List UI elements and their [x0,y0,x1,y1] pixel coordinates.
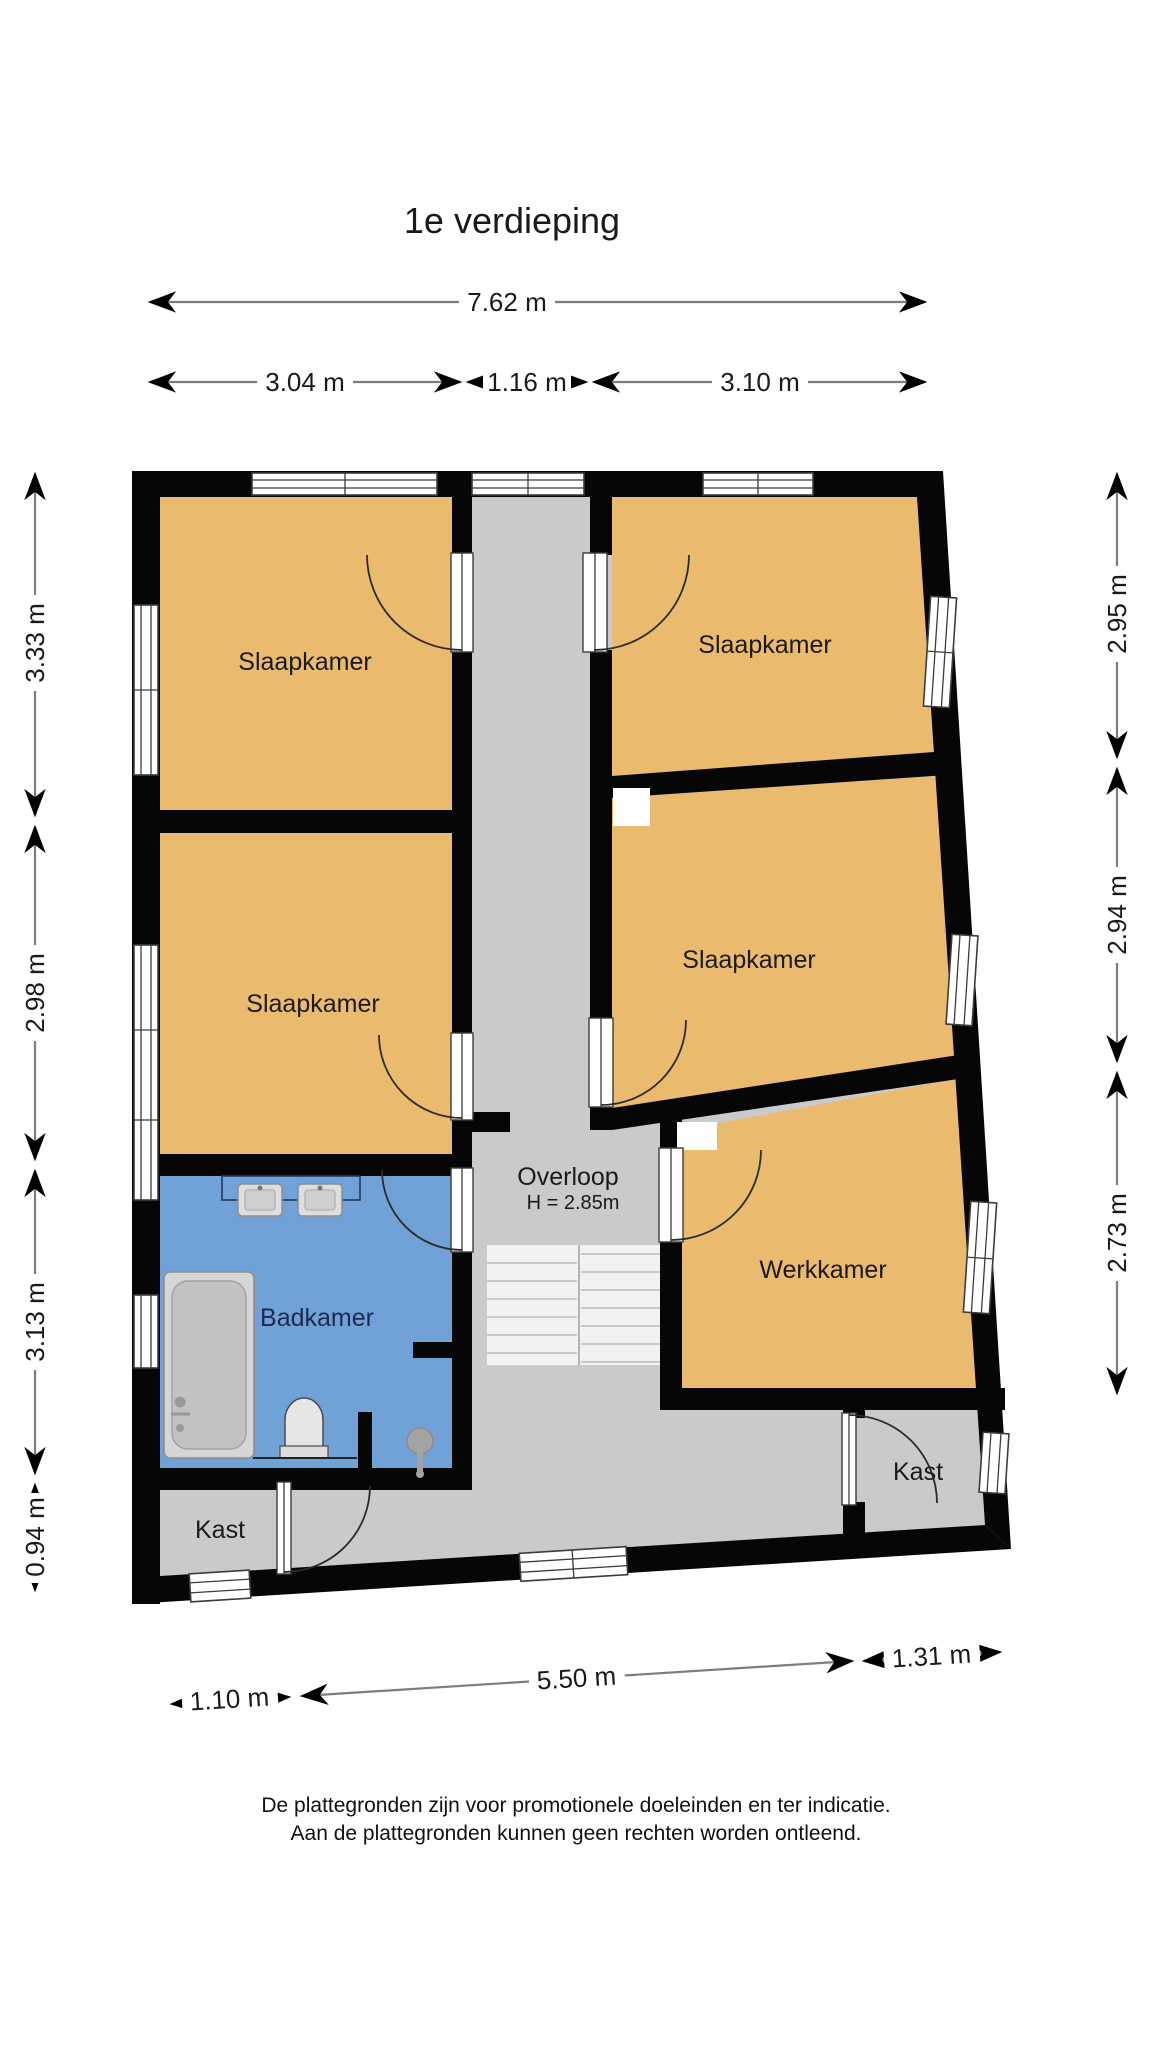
floorplan-canvas: 1e verdieping [0,0,1152,2048]
dimension-top-segment-1: 3.04 m [150,367,460,397]
dimension-left-2: 2.98 m [19,827,51,1159]
niche-bedroom-mid-right [613,788,650,826]
dimension-label-bottom-2: 5.50 m [536,1661,617,1696]
dimension-label-right-1: 2.95 m [1102,574,1132,654]
dimension-top-segment-2: 1.16 m [468,367,586,397]
niche-workroom [677,1122,717,1150]
window-top-bedroom-right [703,473,813,495]
dimension-label-right-3: 2.73 m [1102,1193,1132,1273]
dimension-bottom-1: 1.10 m [172,1682,289,1719]
wall-bedroom-bathroom [160,1154,472,1176]
dimension-top-segment-3: 3.10 m [594,367,925,397]
dimension-label-bottom-3: 1.31 m [891,1639,972,1674]
wall-hall-right-3 [590,1105,612,1130]
dimension-left-4: 0.94 m [19,1485,51,1590]
room-workroom [682,1079,976,1388]
window-top-bedroom-left [252,473,437,495]
window-bottom-closet-left [189,1570,251,1602]
page-title: 1e verdieping [404,200,620,241]
window-left-bathroom [134,1295,158,1368]
room-label-bedroom-mid-left: Slaapkamer [246,990,379,1018]
window-left-bedroom-top [134,605,158,775]
stairs [487,1245,660,1365]
wall-shower-stub-vertical [358,1412,372,1468]
footer-disclaimer: De plattegronden zijn voor promotionele … [261,1794,890,1845]
bathtub [164,1272,254,1458]
room-label-workroom: Werkkamer [759,1256,886,1284]
room-label-bedroom-top-right: Slaapkamer [698,631,831,659]
wall-shower-stub-horizontal [413,1342,470,1358]
wall-bedrooms-left-divider [160,810,472,833]
window-left-bedroom-mid [134,945,158,1200]
dimension-label-left-3: 3.13 m [20,1282,50,1362]
room-label-landing: Overloop [517,1163,618,1191]
window-right-bedroom-mid [946,934,978,1026]
dimension-bottom-3: 1.31 m [864,1639,1000,1676]
wall-workroom-bottom [660,1388,1005,1410]
wall-hall-left-1 [452,497,472,555]
room-bedroom-mid-right [612,776,954,1110]
dimension-label-top-total: 7.62 m [467,287,547,317]
window-bottom-corridor [519,1547,628,1582]
dimension-left-3: 3.13 m [19,1171,51,1473]
footer-line-2: Aan de plattegronden kunnen geen rechten… [291,1822,862,1845]
room-label-bedroom-mid-right: Slaapkamer [682,946,815,974]
room-label-landing-height: H = 2.85m [527,1192,620,1214]
wall-closet-right-bottom [843,1502,865,1535]
room-label-closet-right: Kast [893,1458,943,1486]
wall-bathroom-bottom [160,1468,472,1490]
footer-line-1: De plattegronden zijn voor promotionele … [261,1794,890,1817]
wall-workroom-left-2 [660,1240,682,1410]
room-label-bathroom: Badkamer [260,1304,374,1332]
dimension-label-top-3: 3.10 m [720,367,800,397]
dimension-label-right-2: 2.94 m [1102,875,1132,955]
room-label-bedroom-top-left: Slaapkamer [238,648,371,676]
dimension-label-bottom-1: 1.10 m [189,1682,270,1717]
window-top-hall [472,473,584,495]
wall-hall-right-2 [590,650,612,1020]
floorplan-page: 1e verdieping [0,0,1152,2048]
dimension-label-top-1: 3.04 m [265,367,345,397]
dimension-label-left-2: 2.98 m [20,953,50,1033]
dimension-label-left-4: 0.94 m [20,1497,50,1577]
dimension-label-left-1: 3.33 m [20,603,50,683]
dimension-left-1: 3.33 m [19,474,51,815]
dimension-right-1: 2.95 m [1101,474,1133,757]
dimension-right-2: 2.94 m [1101,769,1133,1061]
window-right-closet [979,1432,1009,1494]
dimension-right-3: 2.73 m [1101,1073,1133,1393]
dimension-bottom-2: 5.50 m [302,1661,852,1698]
wall-hall-left-4 [452,1250,472,1490]
wall-hall-left-2 [452,650,472,1035]
dimension-label-top-2: 1.16 m [487,367,567,397]
wall-hall-right-1 [590,497,612,555]
dimension-top-total: 7.62 m [150,287,925,317]
room-label-closet-left: Kast [195,1516,245,1544]
